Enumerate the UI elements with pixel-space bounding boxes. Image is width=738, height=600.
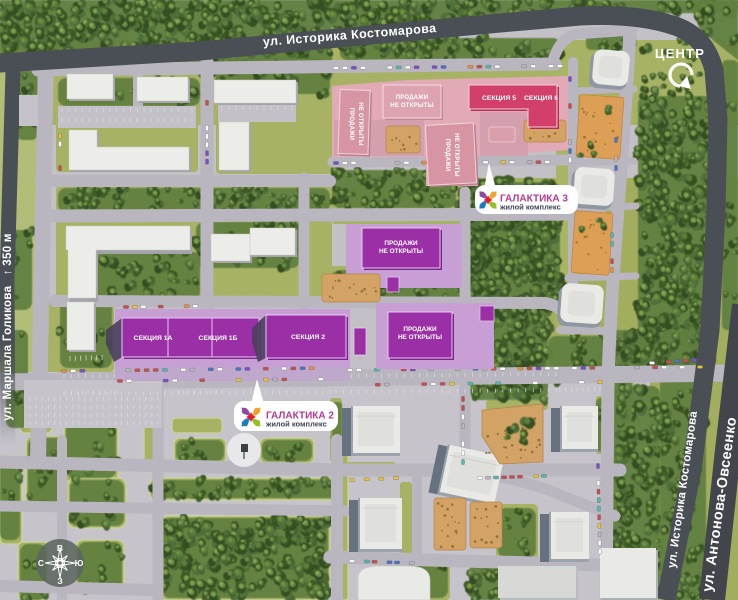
- svg-text:ЦЕНТР: ЦЕНТР: [655, 46, 705, 61]
- svg-text:СЕКЦИЯ 2: СЕКЦИЯ 2: [291, 334, 325, 341]
- svg-text:ул. Маршала Голикова ↑ 350 м: ул. Маршала Голикова ↑ 350 м: [2, 233, 14, 420]
- svg-text:НЕ ОТКРЫТЫ: НЕ ОТКРЫТЫ: [379, 248, 423, 255]
- svg-text:В: В: [57, 543, 63, 553]
- svg-text:НЕ ОТКРЫТЫ: НЕ ОТКРЫТЫ: [357, 102, 363, 145]
- svg-text:СЕКЦИЯ 1Б: СЕКЦИЯ 1Б: [199, 335, 238, 342]
- svg-text:НЕ ОТКРЫТЫ: НЕ ОТКРЫТЫ: [390, 103, 433, 109]
- svg-text:С: С: [38, 558, 44, 568]
- svg-text:жилой комплекс: жилой комплекс: [265, 420, 327, 429]
- svg-text:ПРОДАЖИ: ПРОДАЖИ: [444, 139, 450, 172]
- svg-text:жилой комплекс: жилой комплекс: [499, 203, 561, 212]
- svg-text:ПРОДАЖИ: ПРОДАЖИ: [403, 326, 437, 333]
- svg-text:ПРОДАЖИ: ПРОДАЖИ: [396, 95, 429, 101]
- svg-text:Ю: Ю: [75, 558, 84, 568]
- svg-text:СЕКЦИЯ 6: СЕКЦИЯ 6: [524, 95, 558, 102]
- svg-text:СЕКЦИЯ 5: СЕКЦИЯ 5: [482, 95, 516, 102]
- svg-text:ПРОДАЖИ: ПРОДАЖИ: [348, 108, 354, 141]
- svg-text:НЕ ОТКРЫТЫ: НЕ ОТКРЫТЫ: [453, 133, 459, 176]
- svg-text:НЕ ОТКРЫТЫ: НЕ ОТКРЫТЫ: [398, 334, 442, 341]
- svg-text:СЕКЦИЯ 1А: СЕКЦИЯ 1А: [134, 335, 173, 342]
- svg-text:З: З: [57, 576, 62, 586]
- svg-text:ПРОДАЖИ: ПРОДАЖИ: [384, 240, 418, 247]
